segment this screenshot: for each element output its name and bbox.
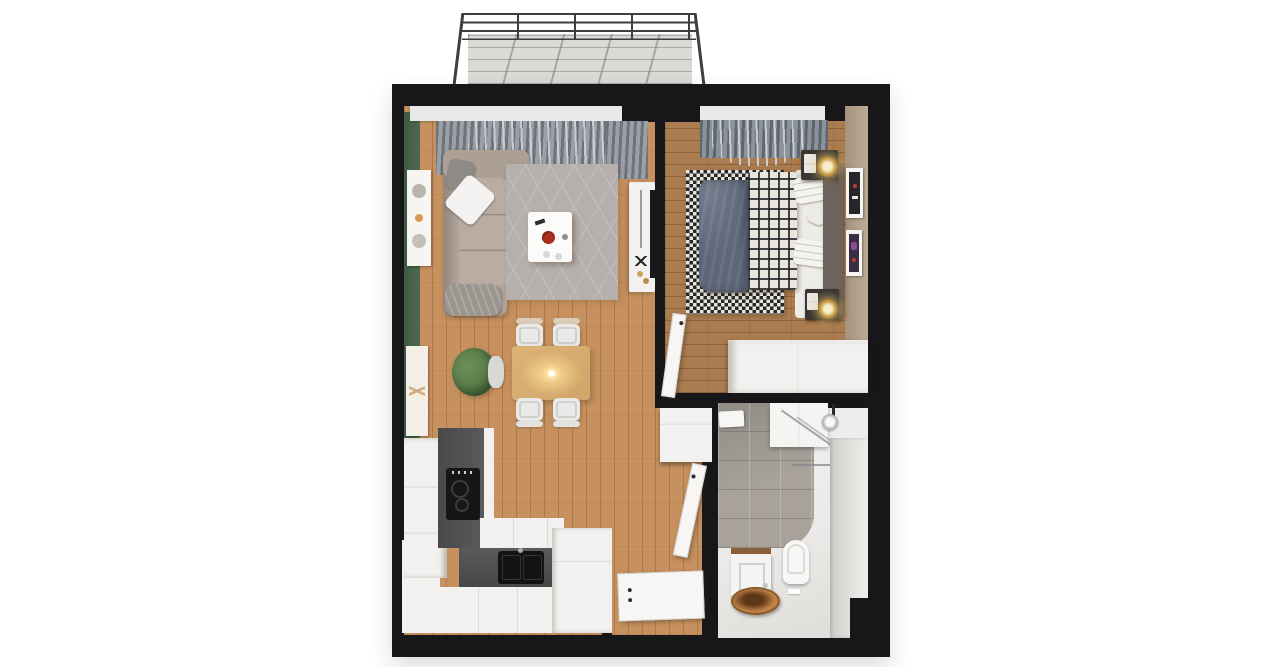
hall-cabinet bbox=[660, 408, 712, 462]
table-lamp-top bbox=[817, 156, 838, 177]
bedroom-art-frame-2 bbox=[846, 230, 862, 276]
wall-mounted-tv bbox=[650, 190, 655, 278]
console-black-decor bbox=[635, 256, 647, 266]
pendant-light bbox=[548, 370, 555, 377]
cooktop-controls bbox=[452, 471, 474, 474]
wardrobe bbox=[728, 340, 868, 393]
plant-planter bbox=[488, 356, 504, 388]
console-gold-ball-1 bbox=[637, 271, 643, 277]
art-x-shape bbox=[409, 372, 425, 410]
wall-art-frame-1 bbox=[407, 170, 431, 266]
art-circle-gray bbox=[412, 184, 426, 198]
front-door-handle-2 bbox=[628, 598, 632, 602]
bedroom-art-frame-1 bbox=[846, 168, 863, 218]
small-cup-1 bbox=[562, 234, 568, 240]
sink-faucet bbox=[518, 548, 523, 553]
books-top bbox=[804, 154, 816, 173]
table-lamp-bottom bbox=[818, 299, 838, 319]
art-red-speck-2 bbox=[852, 258, 856, 262]
small-cup-2 bbox=[543, 251, 550, 258]
sink-bowl-left bbox=[502, 555, 521, 580]
bedroom-window-beam bbox=[700, 106, 825, 120]
chair-back-bottom-left bbox=[516, 421, 543, 427]
coffee-table bbox=[528, 212, 572, 262]
kitchen-right-white-block bbox=[552, 528, 612, 633]
bedroom-sheer-curtain bbox=[712, 120, 804, 166]
art-purple-print bbox=[849, 234, 859, 272]
balcony-railing-posts bbox=[462, 13, 696, 40]
dining-chair-top-right bbox=[553, 324, 580, 347]
console-gold-ball-2 bbox=[643, 278, 649, 284]
tv-remote bbox=[535, 219, 546, 226]
living-window-beam bbox=[410, 106, 622, 121]
wall-right-of-bedroom-window bbox=[825, 106, 847, 121]
art-white-speck bbox=[852, 196, 858, 199]
books-bottom bbox=[807, 293, 818, 310]
sink-bowl-right bbox=[523, 555, 542, 580]
front-door-open-leaf bbox=[617, 571, 705, 622]
small-cup-3 bbox=[555, 253, 562, 260]
sofa-throw-blanket bbox=[445, 284, 501, 316]
balcony-rail-left bbox=[453, 13, 465, 85]
floorplan-canvas bbox=[0, 0, 1280, 667]
wall-notch-bottom-right bbox=[850, 598, 890, 657]
front-door-handle-1 bbox=[628, 588, 632, 592]
kitchen-double-sink bbox=[498, 551, 544, 584]
partition-living-bedroom bbox=[655, 106, 665, 393]
kitchen-bottom-front bbox=[440, 587, 559, 633]
wall-art-frame-2 bbox=[406, 346, 428, 436]
art-dot-orange bbox=[415, 214, 423, 222]
bed-duvet bbox=[699, 180, 750, 292]
dining-chair-bottom-left bbox=[516, 398, 543, 421]
bed-plaid-blanket bbox=[748, 172, 797, 290]
bathroom-door-handle bbox=[691, 474, 696, 479]
balcony-floor bbox=[468, 34, 692, 84]
shower-head bbox=[822, 414, 838, 430]
art-arc-gray bbox=[412, 234, 426, 248]
dining-chair-bottom-right bbox=[553, 398, 580, 421]
balcony-rail-right bbox=[694, 13, 706, 85]
mirror-cabinet bbox=[770, 403, 828, 447]
bath-towel bbox=[719, 410, 745, 427]
chair-back-bottom-right bbox=[553, 421, 580, 427]
wall-hung-toilet bbox=[783, 540, 809, 584]
art-purple-speck bbox=[851, 242, 857, 250]
console-rod-decor bbox=[640, 190, 642, 248]
induction-cooktop bbox=[446, 468, 480, 520]
art-dark-print bbox=[849, 172, 860, 214]
toilet-flush-plate bbox=[788, 589, 800, 594]
red-bowl bbox=[542, 231, 555, 244]
art-red-speck bbox=[853, 184, 857, 188]
copper-vessel-sink bbox=[731, 587, 780, 615]
dining-chair-top-left bbox=[516, 324, 543, 347]
bedroom-door-handle bbox=[679, 321, 684, 326]
